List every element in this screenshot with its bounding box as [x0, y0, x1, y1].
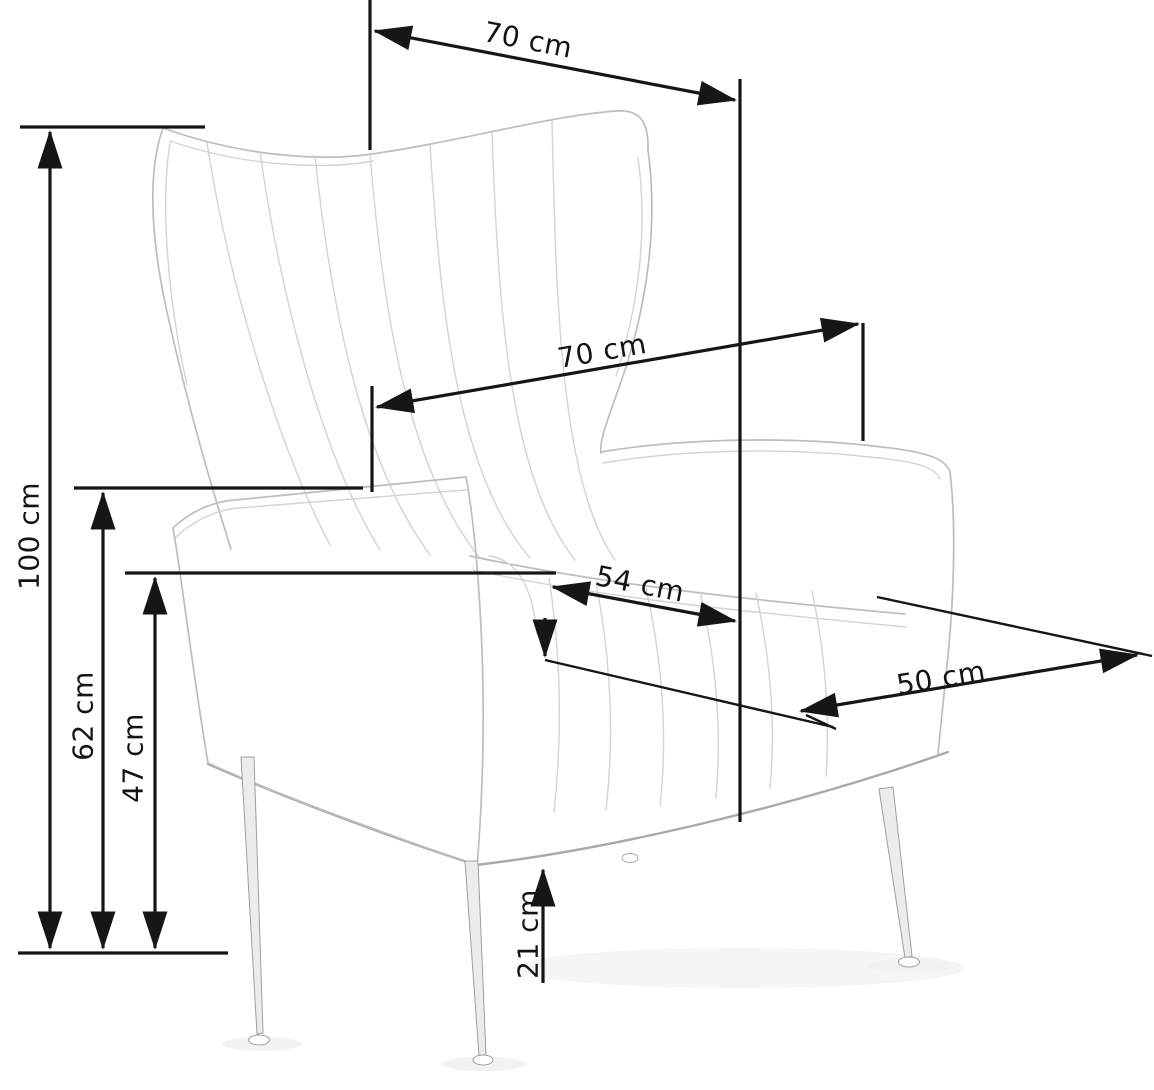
dimension-label-top-width: 70 cm: [481, 15, 575, 65]
dimension-label-seat-depth: 50 cm: [894, 654, 988, 701]
dimension-label-seat-width: 54 cm: [593, 559, 687, 609]
dimension-label-leg-clearance: 21 cm: [512, 889, 545, 979]
leg-front-center: [465, 861, 486, 1056]
ext-line-seat-back: [877, 597, 1152, 656]
armchair-dimension-diagram: 70 cm 70 cm 100 cm 62 cm 47 cm 54 cm 21 …: [0, 0, 1154, 1090]
dimension-label-armrest-height: 62 cm: [67, 671, 100, 761]
chair-left-armrest: [173, 477, 483, 866]
chair-backrest: [153, 111, 652, 560]
chair-legs: [241, 757, 920, 1065]
leg-front-left: [241, 757, 263, 1034]
diagram-canvas: 70 cm 70 cm 100 cm 62 cm 47 cm 54 cm 21 …: [0, 0, 1154, 1090]
leg-mount-screw: [622, 854, 638, 863]
dimension-annotations: 70 cm 70 cm 100 cm 62 cm 47 cm 54 cm 21 …: [13, 0, 1153, 983]
chair-sketch: [153, 111, 965, 1071]
dimension-label-seat-height: 47 cm: [117, 713, 150, 803]
chair-seat: [208, 556, 948, 865]
foot-rear-right: [899, 957, 920, 967]
foot-front-center: [473, 1055, 493, 1065]
leg-rear-right: [879, 787, 912, 958]
ext-line-seat-front: [545, 660, 833, 727]
foot-front-left: [249, 1035, 270, 1045]
dimension-label-overall-height: 100 cm: [13, 482, 46, 590]
